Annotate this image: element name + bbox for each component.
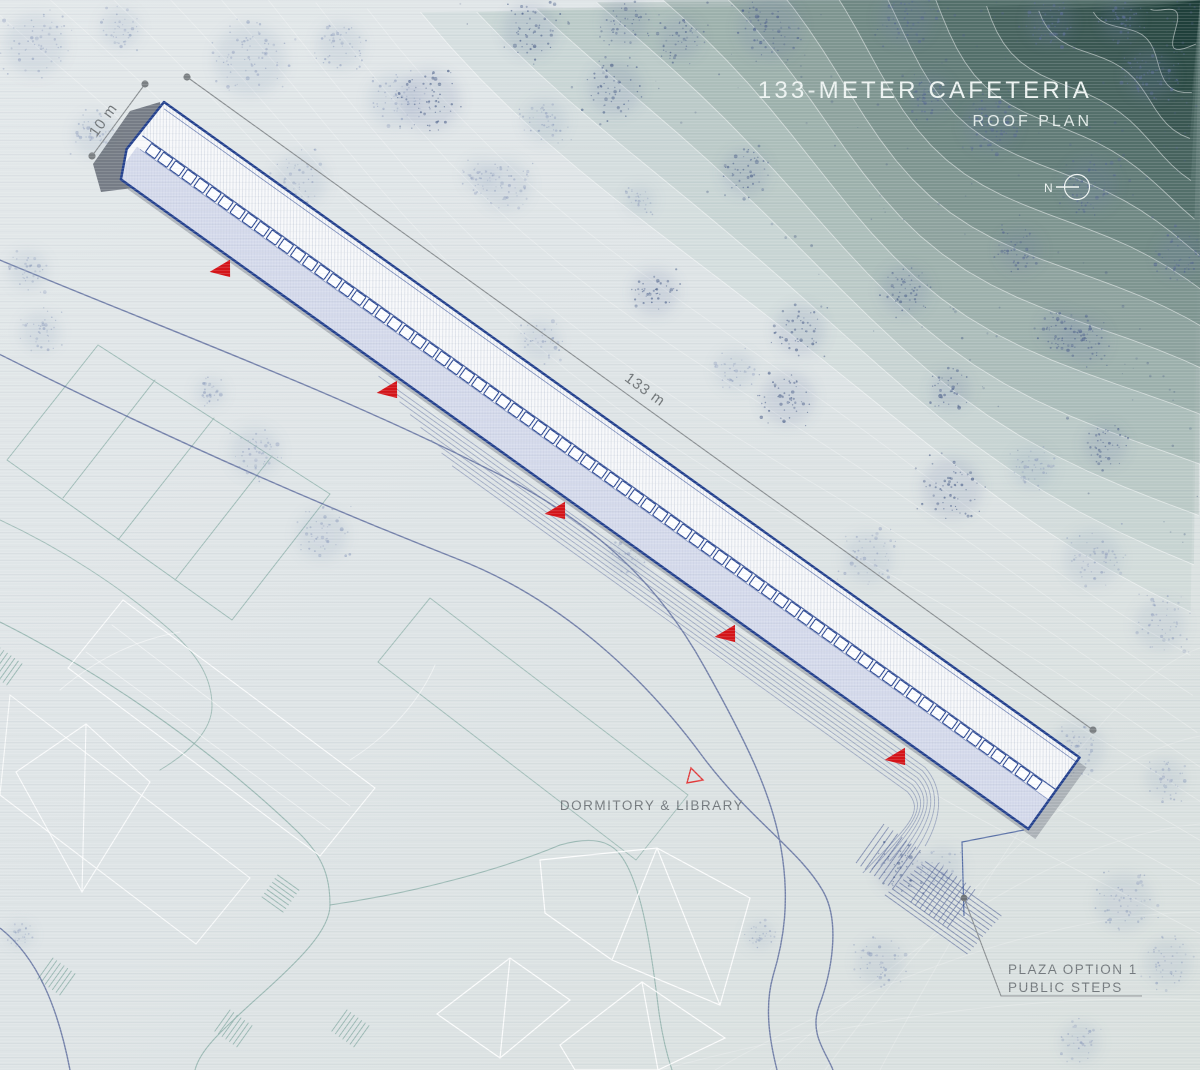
plan-title: 133-METER CAFETERIA: [758, 77, 1092, 104]
plaza-label-line2: PUBLIC STEPS: [1008, 980, 1123, 995]
leader-dot: [961, 895, 968, 902]
callout-triangle: [687, 768, 703, 783]
dimension-endpoint-dot: [88, 152, 95, 159]
dimension-endpoint-dot: [141, 80, 148, 87]
entrance-marker: [208, 260, 232, 280]
hip-roof-outline: [560, 982, 725, 1070]
entrance-marker: [375, 381, 399, 401]
hip-roof-outline: [540, 848, 750, 1005]
site-steps-hatch: [0, 648, 369, 1047]
road-line: [0, 928, 70, 1070]
site-boundary-teal: [330, 840, 672, 1070]
site-boundary-teal: [0, 622, 330, 1070]
road-line: [0, 258, 785, 1070]
parking-strips-teal: [7, 345, 330, 620]
plaza-label-line1: PLAZA OPTION 1: [1008, 962, 1138, 977]
dormitory-label: DORMITORY & LIBRARY: [560, 798, 744, 813]
dimension-endpoint-dot: [183, 73, 190, 80]
site-strip-teal: [378, 598, 688, 860]
north-label: N: [1044, 181, 1054, 195]
building-strip-white: [0, 695, 250, 944]
building-strip-white: [68, 600, 375, 856]
plan-subtitle: ROOF PLAN: [973, 113, 1092, 130]
dimension-endpoint-dot: [1089, 726, 1096, 733]
roof-plan-drawing: 10 m 133 m 133-METER CAFETERIA ROOF PLAN…: [0, 0, 1200, 1070]
site-plan-canvas: 10 m 133 m 133-METER CAFETERIA ROOF PLAN…: [0, 0, 1200, 1070]
hip-roof-outline: [16, 724, 150, 892]
hip-roof-outline: [437, 958, 570, 1058]
path-corner-white: [60, 632, 435, 760]
length-dimension-label: 133 m: [621, 370, 668, 411]
strip-inner-lines: [86, 625, 350, 830]
